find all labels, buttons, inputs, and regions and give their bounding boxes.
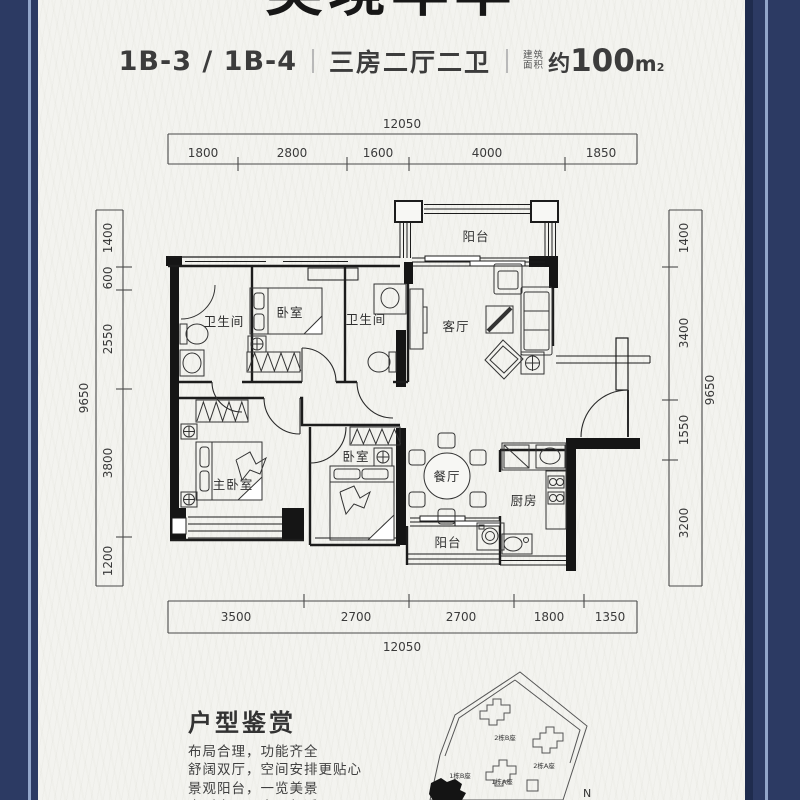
svg-text:1400: 1400 <box>677 223 691 254</box>
label-balcony-bottom: 阳台 <box>434 535 461 550</box>
bedroom-mid-furniture <box>330 427 401 540</box>
dim-labels-right: 1400 3400 1550 3200 9650 <box>677 223 717 539</box>
svg-text:1800: 1800 <box>534 610 565 624</box>
svg-text:3200: 3200 <box>677 508 691 539</box>
entry-door-arc <box>581 390 628 437</box>
dim-top-overall: 12050 <box>383 117 421 131</box>
dim-bottom-overall: 12050 <box>383 640 421 654</box>
svg-text:2700: 2700 <box>446 610 477 624</box>
appreciation-heading: 户型鉴赏 <box>188 703 296 738</box>
label-dining: 餐厅 <box>433 469 460 484</box>
floor-plan: 12050 1800 2800 1600 4000 1850 3500 2700… <box>0 0 800 800</box>
svg-text:1400: 1400 <box>101 223 115 254</box>
dim-labels-top: 12050 1800 2800 1600 4000 1850 <box>188 117 617 160</box>
building-2a-outline <box>533 727 563 753</box>
svg-text:1550: 1550 <box>677 415 691 446</box>
svg-text:1800: 1800 <box>188 146 219 160</box>
label-bedroom-mid: 卧室 <box>342 449 369 464</box>
label-bedroom-top: 卧室 <box>276 305 303 320</box>
appreciation-line-1: 布局合理，功能齐全 <box>188 740 319 760</box>
svg-text:1200: 1200 <box>101 546 115 577</box>
dim-labels-bottom: 3500 2700 2700 1800 1350 12050 <box>221 610 626 654</box>
label-master: 主卧室 <box>213 477 254 492</box>
label-bath2: 卫生间 <box>346 312 387 327</box>
appreciation-line-4-clipped: 户型方正，实用舒适 <box>188 795 319 800</box>
dim-band-left <box>96 210 132 586</box>
appreciation-line-3: 景观阳台，一览美景 <box>188 777 319 797</box>
floorplan-poster: 美境年华 1B-3 / 1B-4 三房二厅二卫 建筑 面积 约100m2 <box>0 0 800 800</box>
label-building-1b: 1栋B座 <box>449 771 471 780</box>
label-living: 客厅 <box>442 319 469 334</box>
label-building-2b: 2栋B座 <box>494 733 516 742</box>
svg-text:600: 600 <box>101 267 115 290</box>
svg-text:1350: 1350 <box>595 610 626 624</box>
svg-text:2800: 2800 <box>277 146 308 160</box>
building-2b-outline <box>480 699 510 725</box>
building-1b-highlighted <box>429 778 466 800</box>
appreciation-line-2: 舒阔双厅，空间安排更贴心 <box>188 758 362 778</box>
label-building-1a: 1栋A座 <box>491 777 513 786</box>
label-balcony-top: 阳台 <box>462 229 489 244</box>
furniture <box>180 264 566 554</box>
svg-text:3400: 3400 <box>677 318 691 349</box>
bedroom-top-furniture <box>247 288 322 372</box>
svg-text:2550: 2550 <box>101 324 115 355</box>
svg-text:4000: 4000 <box>472 146 503 160</box>
label-building-2a: 2栋A座 <box>533 761 555 770</box>
dim-band-top <box>168 134 637 171</box>
svg-text:3500: 3500 <box>221 610 252 624</box>
living-furniture <box>410 264 552 379</box>
svg-text:2700: 2700 <box>341 610 372 624</box>
dim-right-overall: 9650 <box>703 375 717 406</box>
site-map: 2栋B座 2栋A座 1栋B座 1栋A座 N <box>429 672 591 800</box>
room-labels: 卫生间 卧室 卫生间 客厅 阳台 主卧室 卧室 餐厅 厨房 阳台 <box>204 229 538 550</box>
dim-left-overall: 9650 <box>77 383 91 414</box>
label-kitchen: 厨房 <box>510 493 537 508</box>
north-indicator: N <box>583 787 591 800</box>
svg-text:1850: 1850 <box>586 146 617 160</box>
bath1-fixtures <box>180 285 215 376</box>
walls <box>166 201 650 571</box>
label-bath1: 卫生间 <box>204 314 245 329</box>
svg-text:1600: 1600 <box>363 146 394 160</box>
svg-text:3800: 3800 <box>101 448 115 479</box>
